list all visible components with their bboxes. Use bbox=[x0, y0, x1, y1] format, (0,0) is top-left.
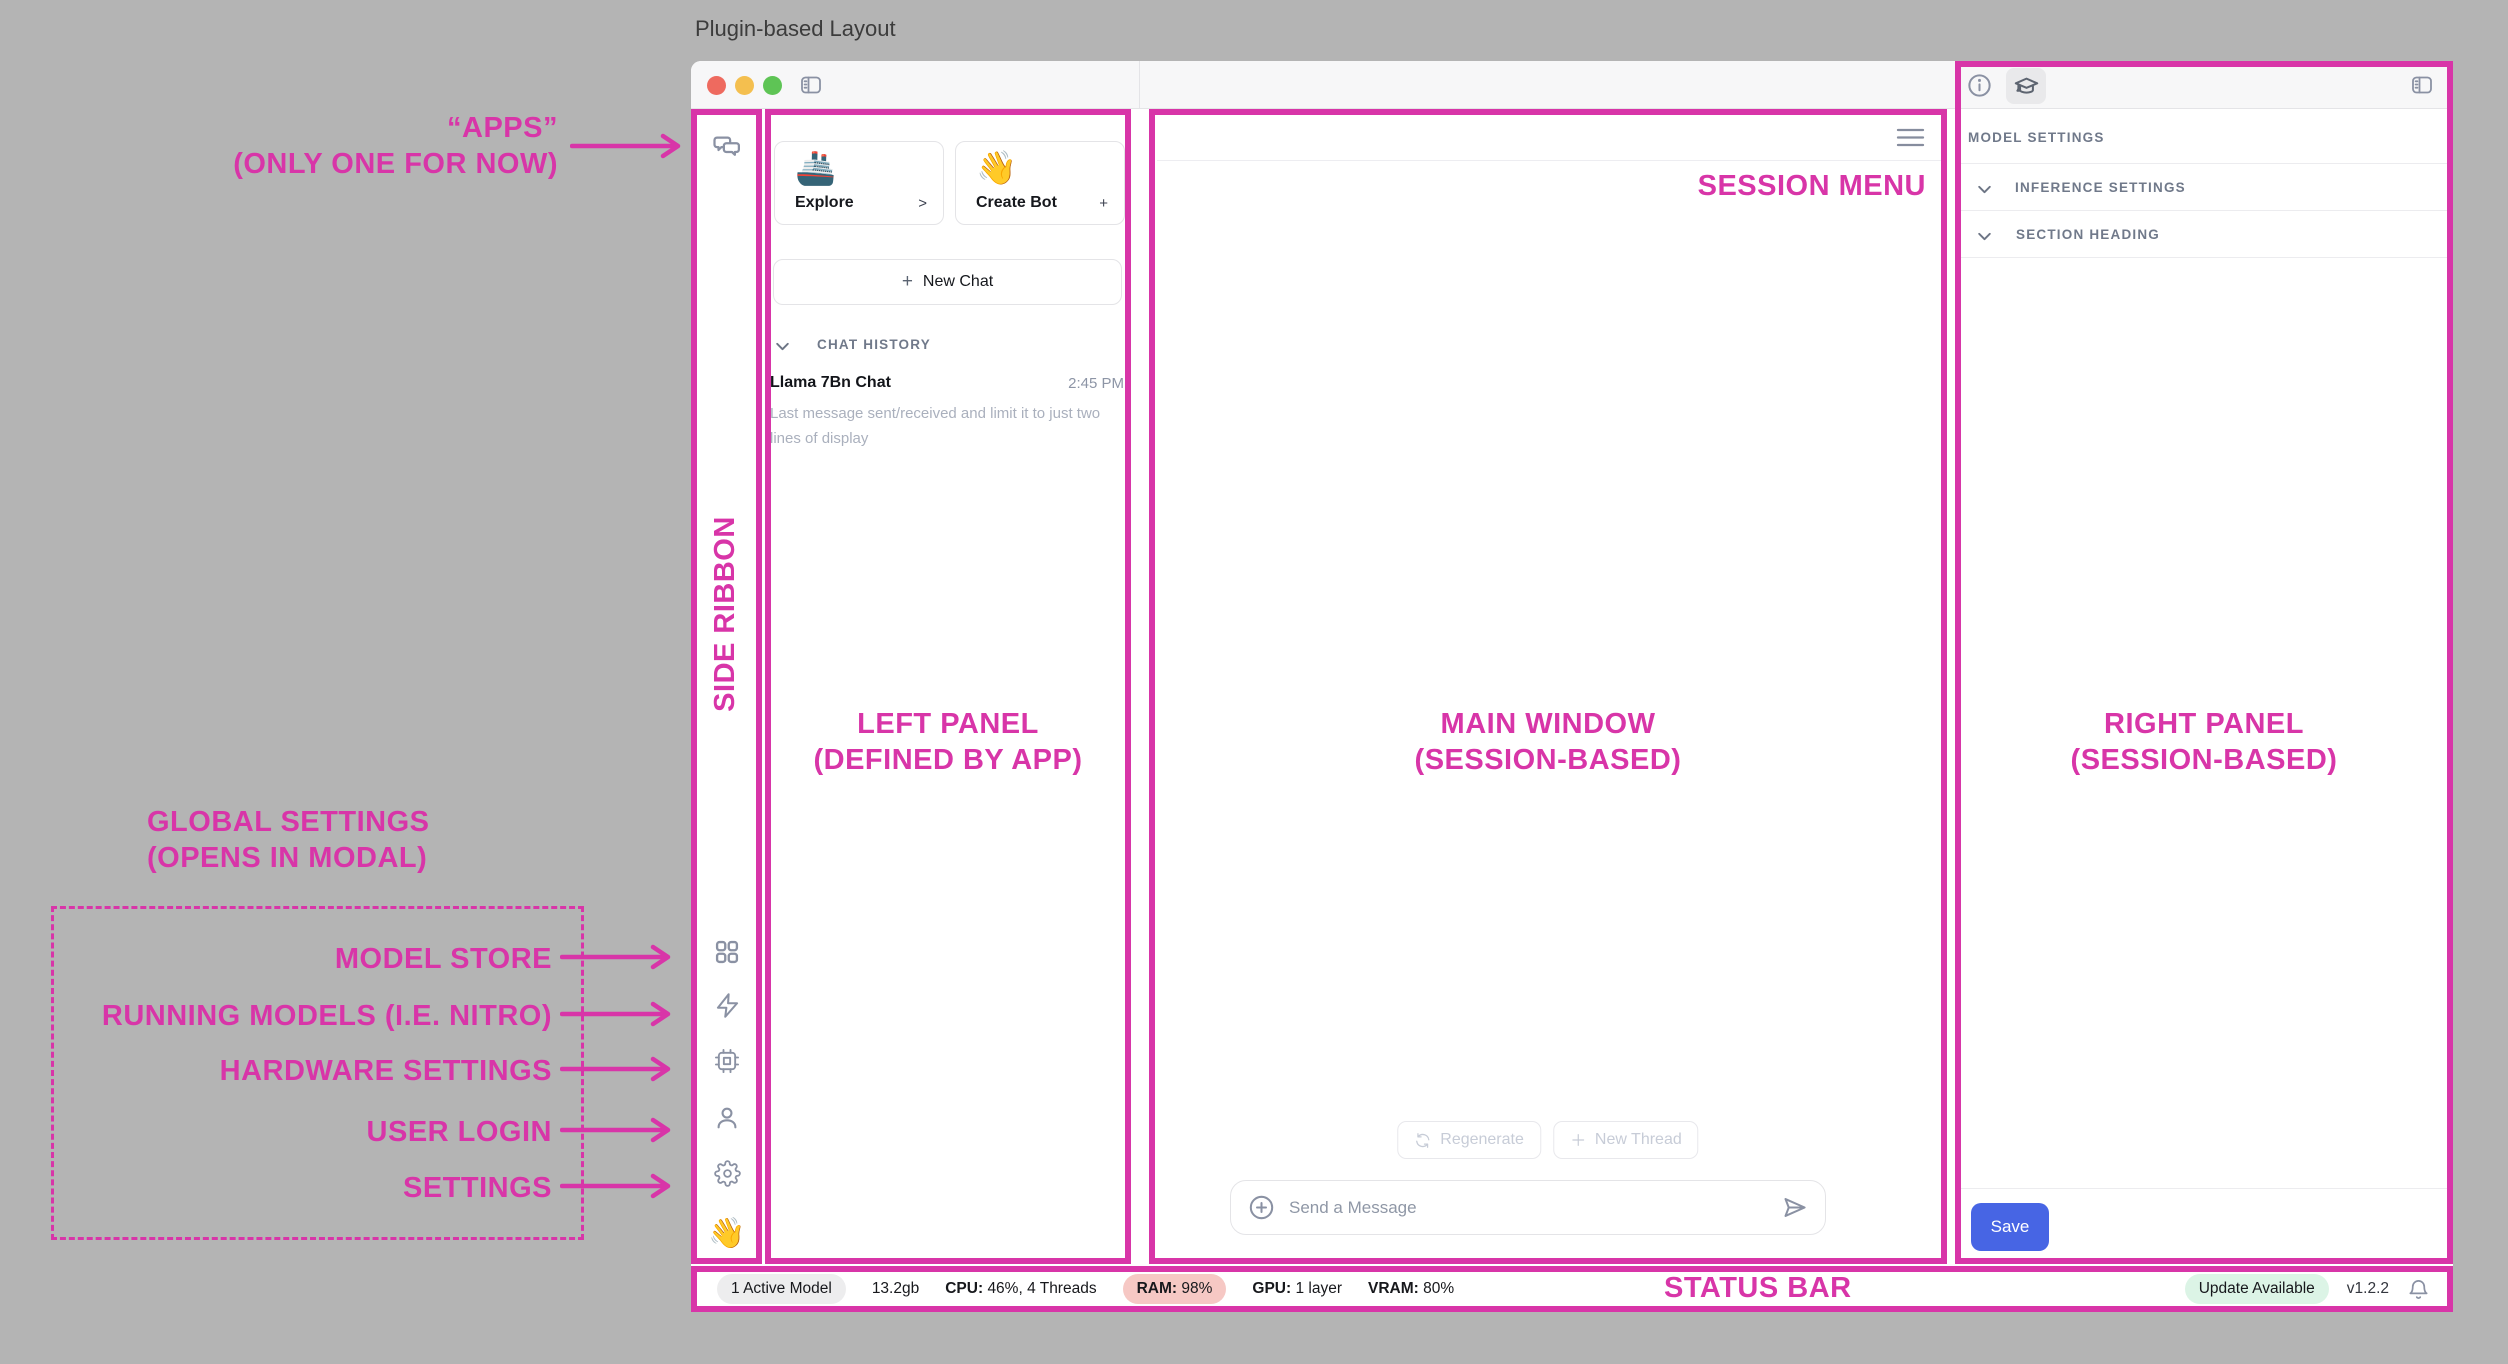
wave-emoji-button[interactable]: 👋 bbox=[705, 1211, 749, 1255]
gpu-stat: GPU: 1 layer bbox=[1252, 1280, 1342, 1298]
minimize-button[interactable] bbox=[735, 76, 754, 95]
status-bar-annotation: STATUS BAR bbox=[1664, 1270, 1852, 1306]
user-login-arrow bbox=[560, 1117, 680, 1143]
status-bar-right: Update Available v1.2.2 bbox=[2185, 1266, 2430, 1312]
new-thread-button[interactable]: New Thread bbox=[1553, 1121, 1699, 1159]
divider bbox=[1957, 210, 2451, 211]
gear-icon bbox=[714, 1160, 741, 1187]
section-heading-row[interactable]: SECTION HEADING bbox=[2016, 227, 2160, 242]
cpu-stat: CPU: 46%, 4 Threads bbox=[945, 1280, 1096, 1298]
model-settings-header: MODEL SETTINGS bbox=[1968, 130, 2105, 145]
divider bbox=[1957, 163, 2451, 164]
running-models-annotation: RUNNING MODELS (I.E. NITRO) bbox=[60, 998, 552, 1034]
chat-history-header: CHAT HISTORY bbox=[817, 337, 931, 352]
hardware-settings-button[interactable] bbox=[705, 1039, 749, 1083]
main-header-divider bbox=[1157, 160, 1941, 161]
wave-emoji: 👋 bbox=[976, 150, 1017, 186]
chevron-down-icon bbox=[774, 338, 791, 355]
attach-plus-icon[interactable] bbox=[1248, 1194, 1275, 1221]
left-sidebar-toggle-icon[interactable] bbox=[797, 73, 825, 97]
plus-glyph: + bbox=[1099, 195, 1108, 212]
close-button[interactable] bbox=[707, 76, 726, 95]
inference-settings-collapse[interactable] bbox=[1976, 181, 1993, 198]
regenerate-button[interactable]: Regenerate bbox=[1397, 1121, 1541, 1159]
inference-settings-row[interactable]: INFERENCE SETTINGS bbox=[2015, 180, 2186, 195]
update-available-badge[interactable]: Update Available bbox=[2185, 1274, 2329, 1304]
model-store-annotation: MODEL STORE bbox=[60, 941, 552, 977]
session-menu-annotation: SESSION MENU bbox=[1600, 168, 1926, 204]
user-login-annotation: USER LOGIN bbox=[60, 1114, 552, 1150]
status-bar-left: 1 Active Model 13.2gb CPU: 46%, 4 Thread… bbox=[717, 1266, 1454, 1312]
create-bot-label: Create Bot bbox=[976, 194, 1057, 212]
app-version: v1.2.2 bbox=[2347, 1280, 2389, 1298]
send-icon[interactable] bbox=[1781, 1194, 1808, 1221]
active-models-badge: 1 Active Model bbox=[717, 1274, 846, 1304]
user-login-button[interactable] bbox=[705, 1096, 749, 1140]
left-panel-annotation: LEFT PANEL (DEFINED BY APP) bbox=[768, 706, 1128, 778]
refresh-icon bbox=[1414, 1132, 1431, 1149]
chat-item-time: 2:45 PM bbox=[1068, 375, 1124, 392]
wave-emoji: 👋 bbox=[708, 1216, 745, 1251]
explore-card[interactable]: 🚢 Explore > bbox=[774, 141, 944, 225]
page-title: Plugin-based Layout bbox=[695, 16, 896, 42]
cpu-icon bbox=[713, 1047, 741, 1075]
divider bbox=[1957, 257, 2451, 258]
regenerate-label: Regenerate bbox=[1440, 1131, 1524, 1149]
chat-icon bbox=[711, 132, 743, 162]
save-button[interactable]: Save bbox=[1971, 1203, 2049, 1251]
hardware-settings-annotation: HARDWARE SETTINGS bbox=[60, 1053, 552, 1089]
ram-badge: RAM: 98% bbox=[1123, 1274, 1227, 1304]
new-chat-button[interactable]: + New Chat bbox=[773, 259, 1122, 305]
chat-app-button[interactable] bbox=[705, 125, 749, 169]
apps-arrow bbox=[570, 133, 690, 159]
running-models-arrow bbox=[560, 1001, 680, 1027]
session-menu-button[interactable] bbox=[1895, 125, 1926, 155]
new-chat-label: New Chat bbox=[923, 273, 993, 291]
chat-item-title: Llama 7Bn Chat bbox=[770, 374, 891, 391]
grid-icon bbox=[713, 938, 741, 966]
titlebar-divider bbox=[1139, 61, 1140, 109]
settings-arrow bbox=[560, 1173, 680, 1199]
right-panel-annotation: RIGHT PANEL (SESSION-BASED) bbox=[2024, 706, 2384, 778]
user-icon bbox=[713, 1104, 741, 1132]
chat-history-collapse[interactable] bbox=[774, 338, 791, 355]
apps-annotation: “APPS” (ONLY ONE FOR NOW) bbox=[180, 110, 558, 182]
zoom-button[interactable] bbox=[763, 76, 782, 95]
traffic-lights bbox=[707, 76, 782, 95]
new-thread-label: New Thread bbox=[1595, 1131, 1682, 1149]
main-window-annotation: MAIN WINDOW (SESSION-BASED) bbox=[1368, 706, 1728, 778]
graduation-cap-icon bbox=[2013, 73, 2040, 100]
bell-icon[interactable] bbox=[2407, 1278, 2430, 1301]
section-heading-collapse[interactable] bbox=[1976, 228, 1993, 245]
settings-annotation: SETTINGS bbox=[60, 1170, 552, 1206]
window-titlebar bbox=[691, 61, 2453, 109]
right-panel-toggle-icon[interactable] bbox=[2408, 73, 2436, 97]
divider bbox=[1957, 1188, 2451, 1189]
side-ribbon-annotation: SIDE RIBBON bbox=[707, 439, 747, 789]
ship-emoji: 🚢 bbox=[795, 150, 836, 186]
plus-icon: + bbox=[902, 271, 913, 293]
chevron-down-icon bbox=[1976, 181, 1993, 198]
hardware-settings-arrow bbox=[560, 1056, 680, 1082]
explore-label: Explore bbox=[795, 194, 854, 212]
plus-icon bbox=[1570, 1132, 1586, 1148]
thread-actions: Regenerate New Thread bbox=[1397, 1121, 1698, 1159]
running-models-button[interactable] bbox=[705, 983, 749, 1027]
message-input[interactable] bbox=[1289, 1198, 1767, 1218]
global-settings-annotation: GLOBAL SETTINGS (OPENS IN MODAL) bbox=[147, 804, 429, 876]
vram-stat: VRAM: 80% bbox=[1368, 1280, 1454, 1298]
settings-button[interactable] bbox=[705, 1151, 749, 1195]
assistant-tab-button[interactable] bbox=[2006, 68, 2046, 104]
model-store-arrow bbox=[560, 944, 680, 970]
info-tab-button[interactable] bbox=[1966, 72, 1993, 99]
message-composer[interactable] bbox=[1230, 1180, 1826, 1235]
chat-history-item[interactable]: Llama 7Bn Chat 2:45 PM Last message sent… bbox=[770, 374, 1126, 451]
hamburger-icon bbox=[1895, 125, 1926, 150]
memory-usage: 13.2gb bbox=[872, 1280, 919, 1298]
model-store-button[interactable] bbox=[705, 930, 749, 974]
create-bot-card[interactable]: 👋 Create Bot + bbox=[955, 141, 1125, 225]
chevron-down-icon bbox=[1976, 228, 1993, 245]
chevron-right-glyph: > bbox=[918, 195, 927, 212]
zap-icon bbox=[714, 992, 741, 1019]
chat-item-preview: Last message sent/received and limit it … bbox=[770, 401, 1122, 451]
